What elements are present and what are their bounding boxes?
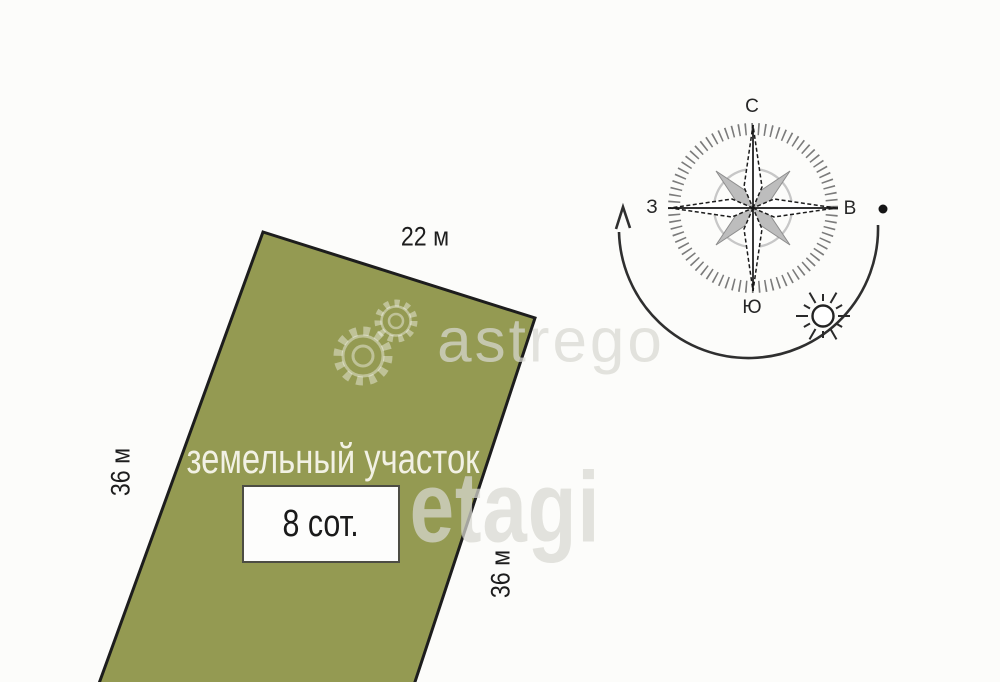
compass-layer [0, 0, 1000, 682]
compass-east-label: В [844, 198, 857, 220]
compass-rose-icon [668, 125, 838, 291]
east-endpoint-dot [879, 205, 888, 214]
land-plot-diagram: astrego etagi земельный участок 8 сот. 2… [0, 0, 1000, 682]
compass-north-label: С [745, 96, 759, 118]
sun-icon [796, 293, 850, 340]
compass-west-label: З [646, 197, 657, 219]
arrow-head-icon [616, 207, 630, 229]
compass-south-label: Ю [742, 297, 761, 319]
